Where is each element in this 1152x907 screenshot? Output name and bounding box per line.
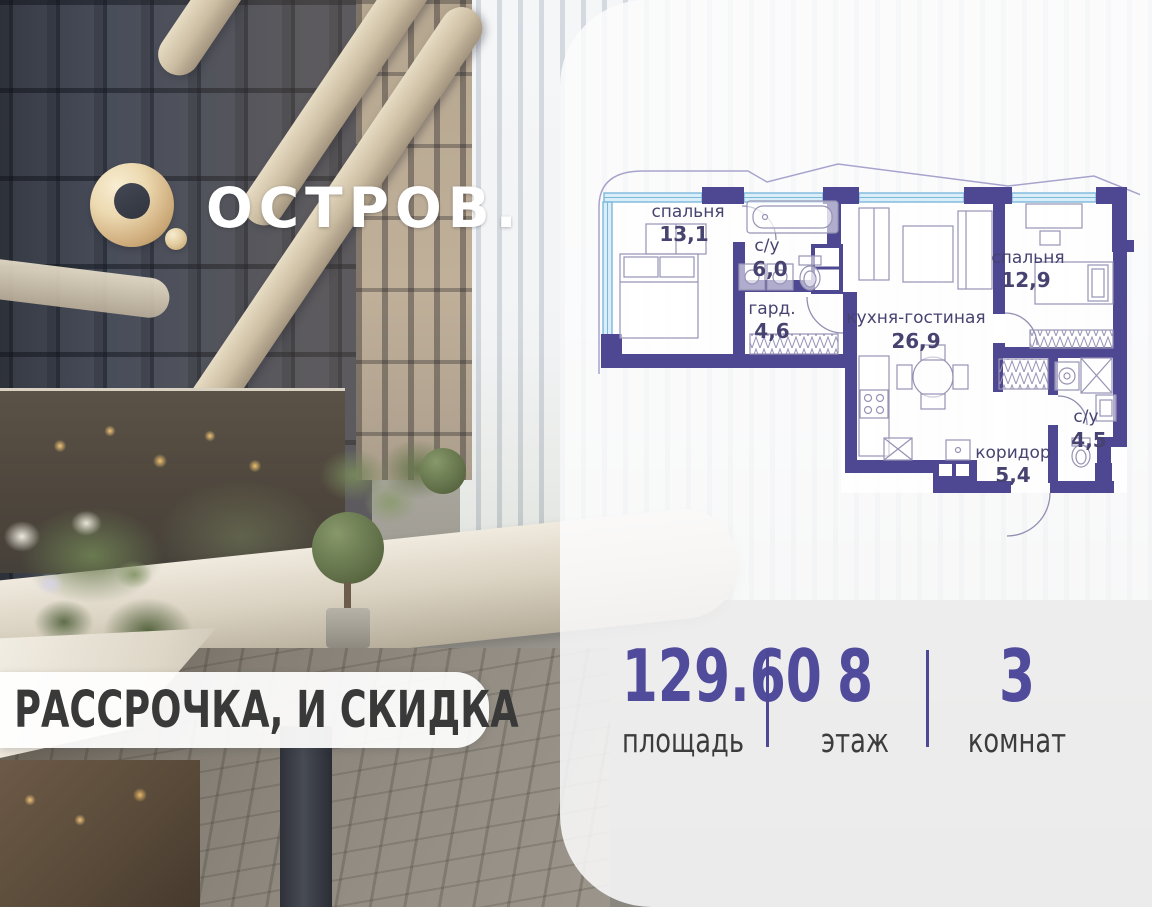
rug-icon: [903, 226, 953, 282]
stat-rooms: 3 комнат: [952, 640, 1082, 757]
room-label-bedroom1: спальня: [651, 202, 724, 222]
logo-ring-icon: [90, 163, 174, 247]
stat-area-label: площадь: [617, 724, 750, 757]
room-area-bedroom2: 12,9: [1001, 268, 1050, 292]
logo-brand-text: ОСТРОВ.: [206, 181, 523, 236]
room-label-bath1: с/у: [754, 236, 779, 256]
decor-topiary-tree: [420, 448, 466, 494]
stat-floor-value: 8: [808, 640, 902, 712]
stove-icon: [860, 390, 888, 418]
decor-cafe-lights: [0, 760, 200, 907]
closet-hatch-icon: [1030, 330, 1113, 348]
stat-rooms-value: 3: [970, 640, 1064, 712]
logo-ring-hole: [114, 183, 150, 219]
room-area-bath1: 6,0: [752, 257, 787, 281]
promo-banner-text: И РАССРОЧКА, И СКИДКА: [0, 681, 519, 740]
bathtub-icon: [747, 201, 838, 233]
decor-topiary-tree: [312, 512, 384, 584]
room-label-bath2: с/у: [1073, 407, 1098, 427]
toilet-icon: [799, 256, 821, 290]
stat-floor-label: этаж: [804, 724, 905, 757]
room-label-kitchen: кухня-гостиная: [846, 308, 985, 328]
sink-icon: [1096, 395, 1116, 421]
room-area-bath2: 4,5: [1071, 428, 1106, 452]
room-area-kitchen: 26,9: [891, 329, 940, 353]
logo-dot-icon: [165, 228, 187, 250]
stat-rooms-label: комнат: [966, 724, 1067, 757]
room-area-wardrobe: 4,6: [754, 319, 789, 343]
promo-banner[interactable]: И РАССРОЧКА, И СКИДКА: [0, 672, 489, 748]
washing-machine-icon: [1055, 362, 1079, 390]
decor-pillar: [280, 726, 332, 907]
sofa-icon: [958, 211, 992, 289]
closet-hatch-icon: [999, 359, 1048, 389]
room-label-corridor: коридор: [975, 443, 1050, 463]
stat-area: 129.60 площадь: [598, 640, 768, 757]
bed-icon: [620, 254, 698, 338]
floorplan: спальня 13,1 с/у 6,0 гард. 4,6 кухня-гос…: [595, 158, 1140, 570]
cabinet-icon: [859, 208, 889, 280]
shower-icon: [1081, 358, 1112, 393]
promo-card: ОСТРОВ. И РАССРОЧКА, И СКИДКА: [0, 0, 1152, 907]
room-area-bedroom1: 13,1: [659, 222, 708, 246]
stats-divider: [926, 650, 929, 747]
stat-area-value: 129.60: [622, 640, 744, 712]
decor-flower-bed: [0, 470, 260, 660]
kitchen-unit-icon: [946, 440, 970, 460]
room-label-bedroom2: спальня: [991, 248, 1064, 268]
room-label-wardrobe: гард.: [748, 299, 795, 319]
stat-floor: 8 этаж: [790, 640, 920, 757]
room-area-corridor: 5,4: [995, 463, 1030, 487]
decor-planter: [326, 608, 370, 648]
stats-divider: [766, 650, 769, 747]
kitchen-sink-icon: [884, 438, 912, 460]
